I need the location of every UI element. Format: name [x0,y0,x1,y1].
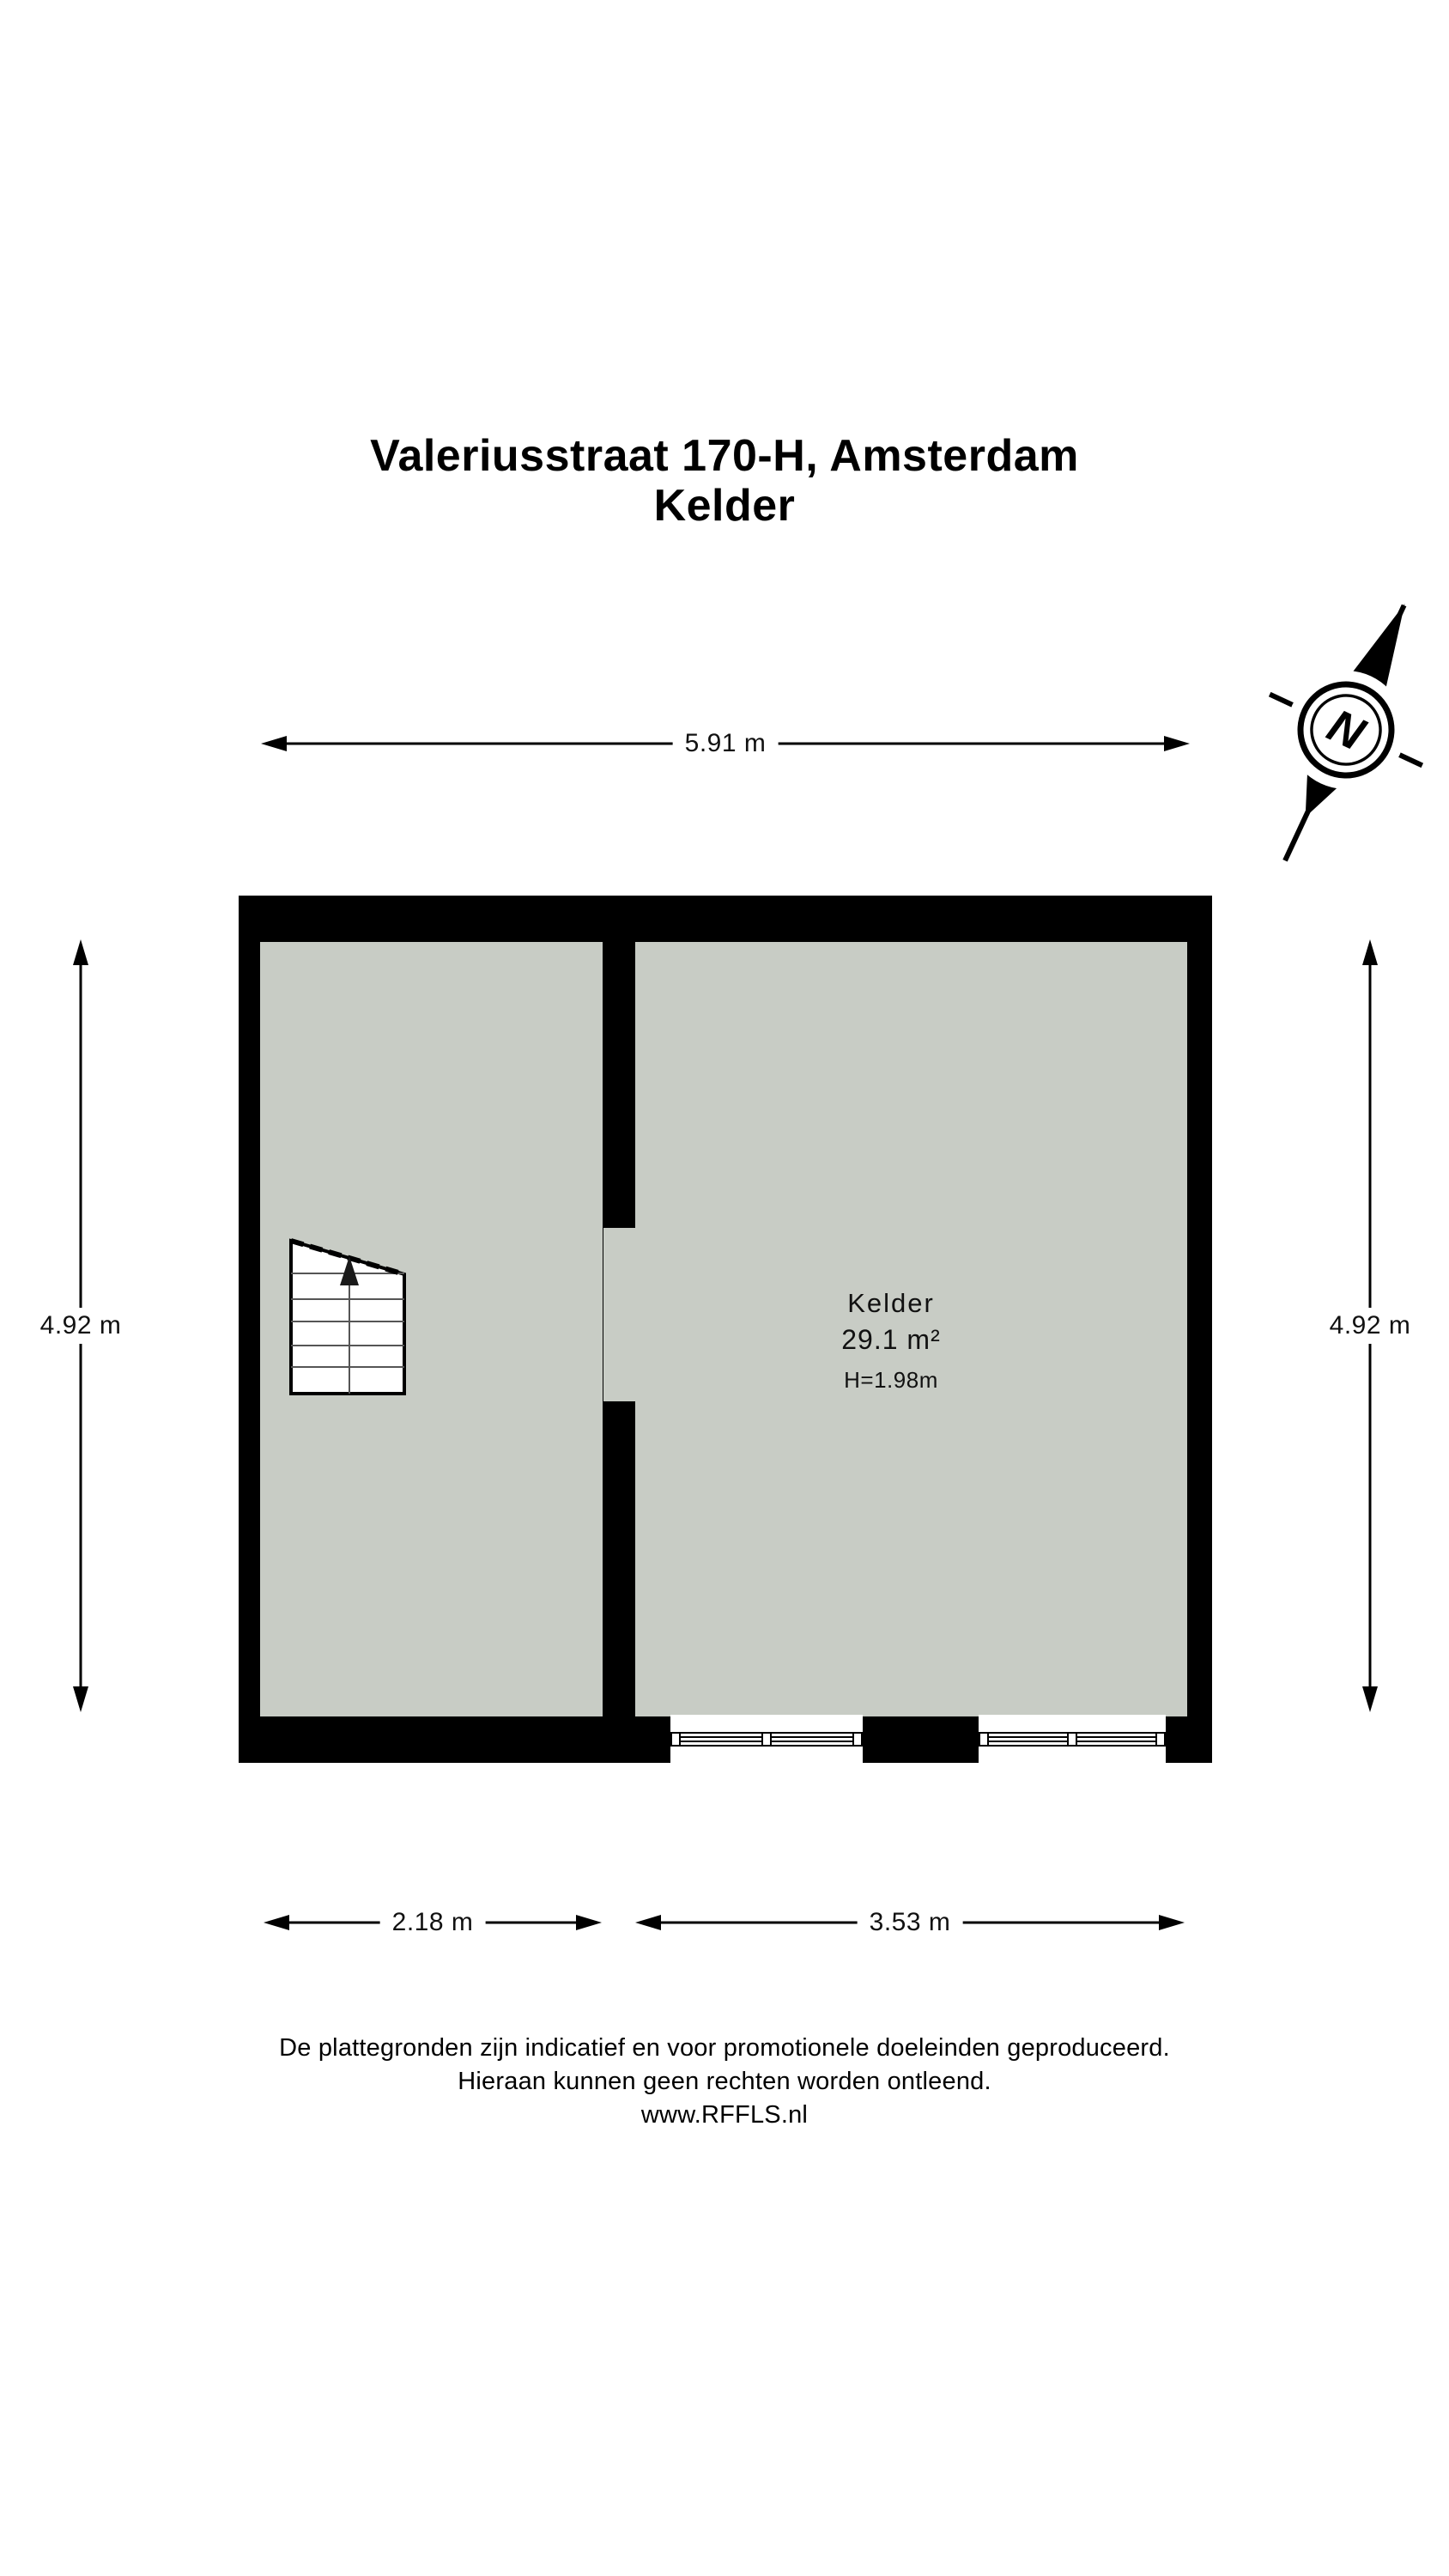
website-text: www.RFFLS.nl [0,2099,1449,2132]
floorplan-page: Valeriusstraat 170-H, Amsterdam Kelder N… [0,0,1449,2576]
disclaimer-line1: De plattegronden zijn indicatief en voor… [0,2032,1449,2065]
dimension-left: 4.92 m [64,934,98,1717]
window-glazing [979,1732,1166,1747]
door-opening [603,1228,635,1401]
dimension-bottom-right: 3.53 m [632,1905,1188,1940]
room-name: Kelder [841,1288,940,1319]
window-right [979,1715,1166,1763]
window-glazing [670,1732,863,1747]
room-ceiling-height: H=1.98m [841,1367,940,1394]
room-area: 29.1 m² [841,1324,940,1356]
page-title: Valeriusstraat 170-H, Amsterdam Kelder [0,431,1449,531]
dimension-top-label: 5.91 m [673,727,779,760]
dimension-bottom-left-label: 2.18 m [380,1906,486,1939]
window-left [670,1715,863,1763]
dimension-left-label: 4.92 m [33,1308,129,1344]
dimension-bottom-right-label: 3.53 m [858,1906,963,1939]
disclaimer-line2: Hieraan kunnen geen rechten worden ontle… [0,2065,1449,2099]
address-title: Valeriusstraat 170-H, Amsterdam [0,431,1449,481]
dimension-top: 5.91 m [258,726,1193,761]
stairs [288,1237,410,1397]
disclaimer: De plattegronden zijn indicatief en voor… [0,2032,1449,2132]
room-label: Kelder 29.1 m² H=1.98m [841,1288,940,1394]
north-compass-icon: N [1252,591,1440,878]
floor-level-title: Kelder [0,481,1449,531]
dimension-right: 4.92 m [1353,934,1387,1717]
dimension-bottom-left: 2.18 m [260,1905,605,1940]
dimension-right-label: 4.92 m [1323,1308,1418,1344]
